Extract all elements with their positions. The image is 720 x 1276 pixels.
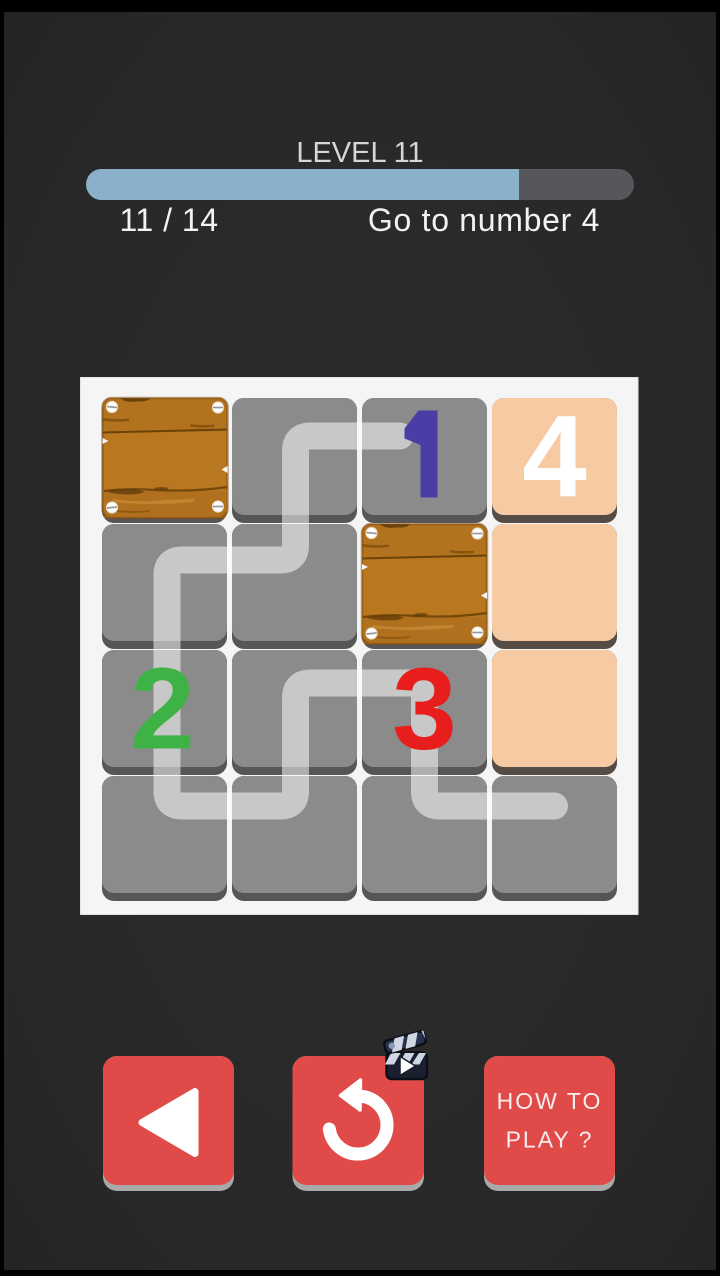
svg-text:PLAY ?: PLAY ?: [506, 1127, 594, 1153]
svg-text:HOW TO: HOW TO: [497, 1088, 603, 1114]
svg-text:4: 4: [522, 392, 587, 522]
svg-text:11 / 14: 11 / 14: [120, 202, 219, 238]
svg-text:3: 3: [392, 644, 457, 774]
svg-text:2: 2: [130, 644, 195, 774]
svg-text:LEVEL 11: LEVEL 11: [296, 137, 423, 169]
svg-text:Go to number 4: Go to number 4: [368, 202, 600, 238]
